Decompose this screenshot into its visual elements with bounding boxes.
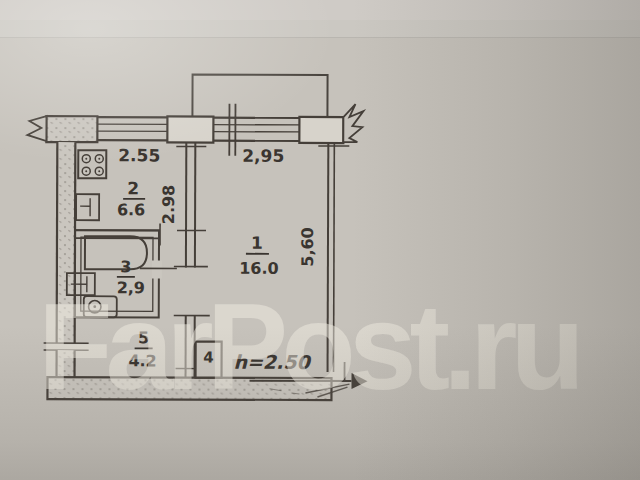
stove-icon [78, 150, 106, 178]
room-living-area: 16.0 [239, 259, 279, 278]
room-living-number: 1 [251, 233, 263, 253]
dimension-room-width: 2,95 [242, 146, 284, 166]
balcony-door-marks [229, 104, 235, 156]
wall-break-left-icon [27, 116, 46, 141]
kitchen-window-icon [97, 117, 167, 140]
room-window-icon [213, 118, 299, 141]
room-kitchen-area: 6.6 [117, 200, 145, 219]
dimension-room-depth: 5,60 [298, 227, 317, 267]
wall-corner-block [46, 116, 97, 142]
kitchen-bath-wall [75, 223, 160, 245]
bathroom-door-gap [152, 260, 162, 278]
dimension-kitchen-width: 2.55 [118, 145, 160, 165]
watermark-text: FarPost.ru [38, 286, 578, 408]
floor-plan-photo: 2.55 2,95 2.98 5,60 2 6.6 1 16.0 3 2,9 5… [0, 0, 640, 480]
wall-pier [167, 116, 213, 142]
bathtub-icon [85, 236, 147, 269]
kitchen-sink-icon [76, 194, 99, 220]
wall-pier [299, 117, 343, 143]
room-bath-number: 3 [120, 257, 131, 276]
balcony-outline [192, 75, 327, 117]
dimension-kitchen-depth: 2.98 [159, 185, 178, 225]
room-kitchen-number: 2 [127, 178, 139, 198]
wall-break-right-icon [343, 104, 363, 142]
